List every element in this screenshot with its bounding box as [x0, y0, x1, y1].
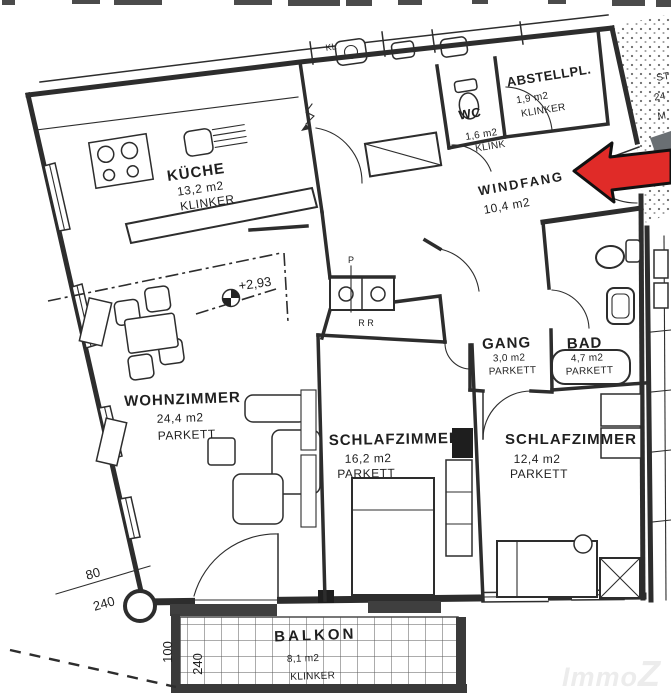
room-floor-balkon: KLINKER — [290, 670, 335, 683]
room-label-wc: WC — [458, 104, 483, 122]
cropped-text-fragments — [2, 0, 671, 7]
room-label-bad: BAD — [567, 334, 603, 352]
room-area-abstellplatz: 1,9 m2 — [515, 90, 549, 106]
door-dim-bottom: 240 — [91, 593, 116, 613]
level-marker — [223, 290, 240, 307]
windfang-closet — [365, 133, 441, 177]
shaft-label-rr: R R — [358, 318, 374, 328]
room-floor-wohnzimmer: PARKETT — [157, 427, 216, 443]
floorplan-canvas: KÜCHE 13,2 m2 KLINKER ABSTELLPL. 1,9 m2 … — [0, 0, 671, 699]
bedroom2-furniture — [497, 394, 641, 598]
room-label-balkon: BALKON — [274, 626, 357, 646]
balcony-dim-depth: 240 — [190, 653, 205, 675]
room-area-windfang: 10,4 m2 — [482, 195, 531, 217]
room-label-gang: GANG — [482, 334, 532, 353]
room-floor-schlafzimmer-1: PARKETT — [337, 466, 395, 481]
room-label-wohnzimmer: WOHNZIMMER — [124, 389, 241, 410]
left-wall-windows — [44, 163, 140, 539]
balcony-dim-width: 100 — [160, 641, 175, 663]
watermark-z: Z — [638, 653, 661, 694]
immoz-watermark: ImmoZ — [562, 653, 661, 695]
room-area-gang: 3,0 m2 — [493, 352, 526, 364]
room-area-schlafzimmer-1: 16,2 m2 — [345, 451, 392, 466]
room-area-schlafzimmer-2: 12,4 m2 — [514, 452, 561, 466]
floorplan-drawing: KÜCHE 13,2 m2 KLINKER ABSTELLPL. 1,9 m2 … — [0, 0, 671, 699]
corner-column — [125, 591, 155, 621]
room-area-wohnzimmer: 24,4 m2 — [156, 410, 203, 426]
level-marker-label: +2,93 — [238, 274, 273, 293]
neighbor-unit-right — [647, 228, 671, 600]
room-area-bad: 4,7 m2 — [571, 352, 604, 364]
room-floor-schlafzimmer-2: PARKETT — [510, 467, 568, 481]
room-label-schlafzimmer-2: SCHLAFZIMMER — [505, 431, 637, 448]
shaft-label-p: P — [348, 255, 354, 265]
stairwell-st-label: ST — [656, 71, 671, 84]
room-floor-gang: PARKETT — [489, 365, 537, 378]
service-shaft — [330, 266, 394, 312]
door-dim-top: 80 — [84, 564, 102, 582]
room-label-windfang: WINDFANG — [477, 169, 565, 199]
property-boundary-dashed — [10, 650, 176, 687]
stairwell-m-label: M — [657, 110, 667, 122]
room-label-schlafzimmer-1: SCHLAFZIMMER — [329, 430, 461, 449]
neighbor-kl-label: KL — [325, 41, 337, 53]
room-floor-bad: PARKETT — [566, 365, 614, 378]
room-label-abstellplatz: ABSTELLPL. — [506, 61, 592, 89]
watermark-immo: Immo — [562, 662, 638, 692]
stairwell-24-label: 24 — [653, 91, 666, 104]
room-area-balkon: 8,1 m2 — [287, 653, 320, 665]
